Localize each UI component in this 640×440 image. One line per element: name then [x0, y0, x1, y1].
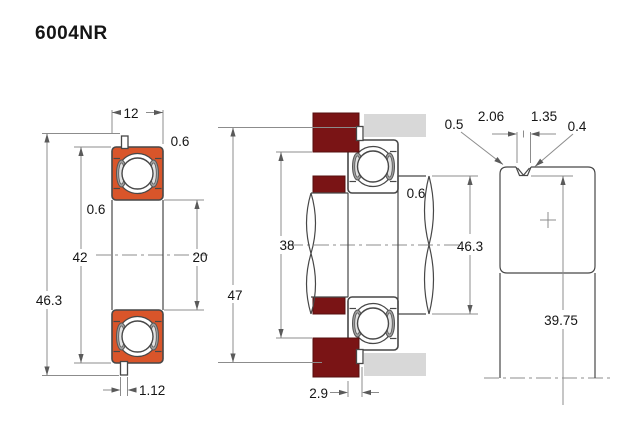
- front-outer-chamfer-label: 0.6: [171, 134, 190, 149]
- mounted-view: 47 38 46.3 0.6: [218, 113, 483, 401]
- front-od-label: 42: [72, 250, 87, 265]
- bearing-drawing-page: 6004NR: [0, 0, 640, 440]
- dim-shoulder-diameter: 38: [276, 152, 312, 338]
- corner-radius-label: 0.4: [568, 119, 587, 134]
- groove-diameter-label: 39.75: [544, 313, 578, 328]
- ball-bottom: [122, 321, 153, 352]
- bearing-drawing: 6004NR: [0, 0, 640, 440]
- front-tab-width-label: 1.12: [139, 383, 165, 398]
- mounted-groove-offset-label: 2.9: [309, 386, 328, 401]
- front-bottom-ring-section: [112, 310, 163, 375]
- housing-bottom: [364, 353, 426, 376]
- snap-ring-tab-top: [122, 136, 129, 149]
- front-width-label: 12: [123, 106, 138, 121]
- dim-groove-widths: 2.06 1.35: [478, 109, 557, 163]
- mounted-fillet-label: 0.6: [407, 186, 426, 201]
- housing-shoulder-top: [313, 113, 359, 152]
- ball-top: [122, 158, 153, 189]
- front-snap-ring-od-label: 46.3: [36, 293, 62, 308]
- front-view: 12 46.3 42: [36, 106, 208, 398]
- snap-ring-tab-bottom: [121, 362, 128, 376]
- shaft-spacer-top: [313, 176, 345, 193]
- front-bore-label: 20: [192, 250, 207, 265]
- dim-tab-width: 1.12: [103, 377, 165, 398]
- front-inner-chamfer-label: 0.6: [87, 202, 106, 217]
- center-mark: [540, 212, 556, 228]
- groove-width-top-label: 2.06: [478, 109, 504, 124]
- callout-corner-radius: 0.4: [535, 119, 587, 167]
- mounted-housing-bore-label: 47: [227, 288, 242, 303]
- housing-top: [364, 114, 426, 137]
- dim-groove-diameter: 39.75: [531, 176, 578, 405]
- groove-width-bottom-label: 1.35: [531, 109, 557, 124]
- page-title: 6004NR: [35, 23, 108, 44]
- mounted-snap-ring-od-label: 46.3: [457, 239, 483, 254]
- edge-margin-label: 0.5: [445, 117, 464, 132]
- callout-edge-margin: 0.5: [445, 117, 503, 165]
- mounted-snap-ring-top: [357, 127, 364, 141]
- front-top-ring-section: [112, 136, 163, 200]
- shaft-spacer-bottom: [313, 297, 345, 314]
- mounted-snap-ring-bottom: [357, 350, 364, 364]
- housing-shoulder-bottom: [313, 338, 359, 377]
- mounted-shoulder-label: 38: [279, 238, 294, 253]
- dim-width: 12: [112, 106, 163, 144]
